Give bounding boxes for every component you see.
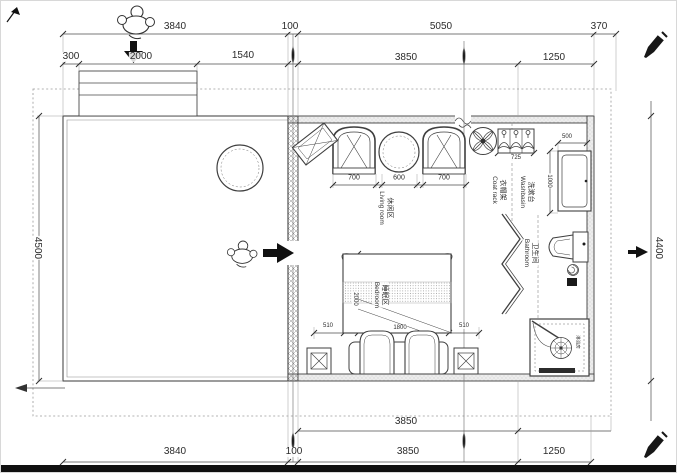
dim-chair-right-700: 700 [437,175,451,182]
label-living-room-en: Living room [377,191,385,225]
pillow-right [405,331,439,374]
entry-steps [79,71,197,116]
bathroom-accessory [567,278,577,286]
page-bottom-rule [1,465,677,472]
arrow-top-left [7,7,20,22]
dim-chair-left-700: 700 [347,175,361,182]
label-bathroom-en: Bathroom [522,239,530,267]
dim-top2-2000: 2000 [129,52,153,62]
label-coat-rack-en: Coat rack [490,176,498,204]
label-bedroom-zh: 睡眠区 [380,282,388,308]
arrow-right-margin [628,246,648,258]
dim-bottom1-3850: 3850 [394,417,418,427]
pillow-left [360,331,394,374]
side-table-left [307,348,331,374]
side-table-right [454,348,478,374]
dim-washbasin-500: 500 [561,134,573,140]
label-shower: 淋浴房 [575,335,580,349]
armchair-right [423,127,465,174]
label-coat-rack: 衣帽架 Coat rack [490,176,506,204]
label-coat-rack-zh: 衣帽架 [498,176,506,204]
entry-arrow-right [263,249,277,257]
wall-decor-frame [292,123,337,165]
entry-arrow-down [130,41,137,51]
dim-top-5050: 5050 [429,22,453,32]
dim-table-600: 600 [392,175,406,182]
round-table [379,132,419,172]
armchair-left [333,127,375,174]
label-bedroom: 睡眠区 Bedroom [372,282,388,308]
dim-left-4500: 4500 [32,236,42,260]
dim-bottom2-3850: 3850 [396,447,420,457]
dim-right-4400: 4400 [653,236,663,260]
dim-top2-1540: 1540 [231,51,255,61]
pen-icon-top [644,32,667,58]
dim-top2-1250: 1250 [542,53,566,63]
coat-rack [498,129,534,153]
dim-top2-300: 300 [62,52,81,62]
label-bedroom-en: Bedroom [372,282,380,308]
grid-lines [292,34,466,462]
dim-bed-width-1800: 1800 [392,325,407,331]
dim-bottom2-100: 100 [285,447,304,457]
wall-top [288,116,594,123]
label-washbasin-en: Washbasin [518,176,526,208]
dim-bottom2-3840: 3840 [163,447,187,457]
label-washbasin-zh: 洗漱台 [526,176,534,208]
label-washbasin: 洗漱台 Washbasin [518,176,534,208]
dim-top2-3850: 3850 [394,53,418,63]
label-bathroom-zh: 卫生间 [530,239,538,267]
dim-bottom2-1250: 1250 [542,447,566,457]
dim-washbasin-1000: 1000 [546,173,552,188]
bedroom-furniture [307,254,478,374]
label-living-room-zh: 休闲区 [385,191,393,225]
arrow-bottom-left [15,384,65,392]
pen-icon-bottom [644,432,667,458]
dim-bed-length-2000: 2000 [352,291,358,306]
floor-plan-drawing [1,1,677,473]
floor-plan-page: 3840 100 5050 370 300 2000 1540 3850 125… [0,0,677,473]
dim-top-3840: 3840 [163,22,187,32]
floor-drain [568,265,579,276]
label-shower-zh: 淋浴房 [575,335,580,349]
living-room-furniture [292,123,496,174]
washbasin-fixture [558,151,591,211]
bathroom-fixtures [502,214,588,314]
dim-coat-rack-725: 725 [510,155,522,161]
toilet [549,232,588,262]
folding-partition [502,214,520,314]
deck-table [217,145,263,191]
dim-bed-right-510: 510 [458,323,470,329]
dim-top-370: 370 [590,22,609,32]
bed-blanket-band [343,282,451,303]
label-bathroom: 卫生间 Bathroom [522,239,538,267]
label-living-room: 休闲区 Living room [377,191,393,225]
dim-top-100: 100 [281,22,300,32]
dim-bed-left-510: 510 [322,323,334,329]
